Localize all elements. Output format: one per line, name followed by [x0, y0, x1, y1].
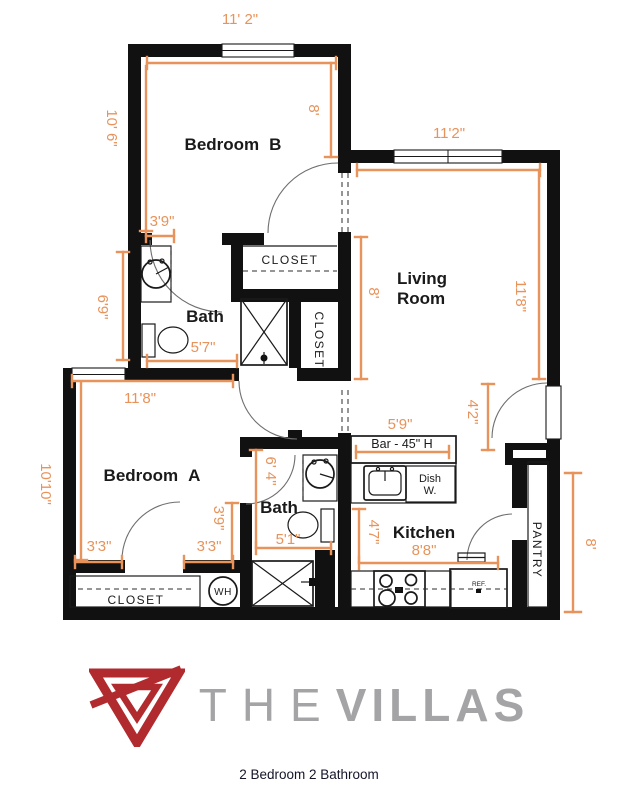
closet-linen-label: CLOSET	[312, 311, 326, 368]
dim-bedroom-a-height: 10'10"	[37, 463, 54, 505]
walls	[63, 44, 560, 620]
wh-label: WH	[214, 587, 232, 598]
bath-a-label: Bath	[260, 498, 298, 517]
closet-bedroom-b: CLOSET	[243, 246, 337, 271]
dim-bath-b-bottom: 5'7"	[191, 339, 216, 356]
door-bedroom-b-closet	[268, 163, 338, 233]
dim-entry: 4'2"	[464, 400, 481, 425]
dim-living-width: 11'2"	[433, 125, 465, 142]
bath-b-shower	[241, 299, 287, 365]
dim-bath-a-width: 5'1"	[276, 531, 301, 548]
living-room-label-1: Living	[397, 269, 447, 288]
dim-kitchen-bar: 5'9"	[388, 416, 413, 433]
kitchen-label: Kitchen	[393, 523, 455, 542]
closet-bottom-label: CLOSET	[107, 593, 164, 607]
dim-kitchen-width: 8'8"	[412, 542, 437, 559]
brand-the: THE	[199, 678, 336, 732]
kitchen-stove	[351, 571, 451, 607]
dim-bedroom-b-8ft: 8'	[305, 104, 322, 115]
plan-caption: 2 Bedroom 2 Bathroom	[0, 767, 618, 782]
dim-bedroom-a-39: 3'9"	[210, 506, 227, 531]
closet-bedroom-a: CLOSET	[70, 576, 200, 607]
entry-door-panel	[546, 386, 561, 439]
door-closet-a	[122, 502, 180, 560]
water-heater: WH	[209, 577, 237, 605]
door-bath-b	[150, 240, 222, 312]
dim-bedroom-a-33-right: 3'3"	[197, 538, 222, 555]
door-entry	[492, 383, 547, 438]
dim-living-height: 11'8"	[512, 280, 529, 312]
bath-a-shower	[252, 561, 317, 606]
brand-lockup: THEVILLAS	[0, 659, 618, 751]
bath-b-label: Bath	[186, 307, 224, 326]
bath-b-sink	[141, 246, 171, 302]
dim-bath-b-height: 6'9"	[94, 295, 111, 320]
bar-label: Bar - 45" H	[371, 437, 432, 451]
villas-logo-icon	[89, 663, 185, 747]
bedroom-a-label: BedroomA	[104, 466, 201, 485]
ref-label: REF.	[472, 581, 486, 588]
closet-top-label: CLOSET	[261, 253, 318, 267]
kitchen-bar: Bar - 45" H	[351, 436, 456, 463]
bath-b-toilet	[142, 324, 188, 357]
dim-bath-b-width: 3'9"	[150, 213, 175, 230]
kitchen-sink-counter: Dish W.	[351, 463, 456, 503]
dim-bath-a-height: 6' 4"	[262, 456, 279, 485]
bath-a-sink	[303, 455, 337, 501]
living-room-label-2: Room	[397, 289, 445, 308]
dim-bedroom-b-height: 10' 6"	[103, 109, 120, 146]
dim-bedroom-a-width: 11'8"	[124, 390, 156, 407]
dishwasher-label-2: W.	[424, 485, 437, 497]
dim-kitchen-height: 4'7"	[365, 520, 382, 545]
floor-plan-page: CLOSET CLOSET WH CLOSET Bar - 45" H	[0, 0, 618, 800]
dim-bedroom-a-33-left: 3'3"	[87, 538, 112, 555]
dim-bedroom-b-width: 11' 2"	[222, 11, 258, 28]
bedroom-b-label: BedroomB	[185, 135, 282, 154]
dim-living-8ft: 8'	[365, 287, 382, 298]
brand-villas: VILLAS	[336, 678, 530, 732]
pantry: PANTRY	[528, 462, 548, 607]
dim-right-8ft: 8'	[582, 538, 599, 549]
floor-plan: CLOSET CLOSET WH CLOSET Bar - 45" H	[0, 0, 618, 645]
dishwasher-label-1: Dish	[419, 473, 441, 485]
pantry-label: PANTRY	[530, 522, 544, 579]
